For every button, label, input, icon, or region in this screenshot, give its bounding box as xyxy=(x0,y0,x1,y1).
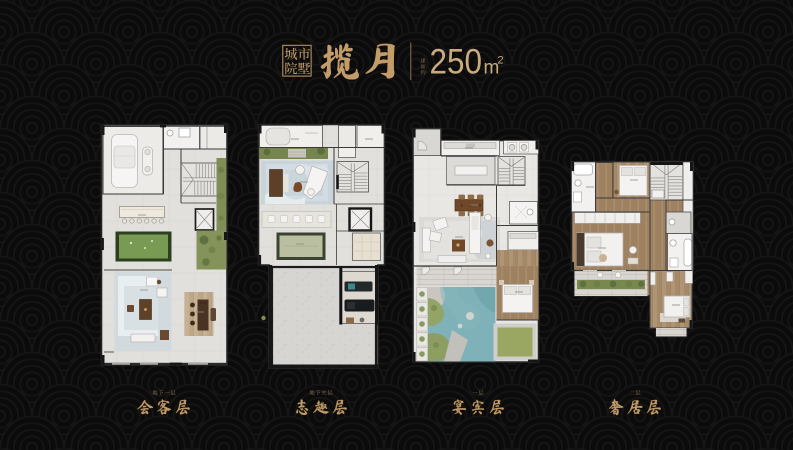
svg-text:2: 2 xyxy=(498,55,504,67)
svg-text:250: 250 xyxy=(430,43,483,82)
